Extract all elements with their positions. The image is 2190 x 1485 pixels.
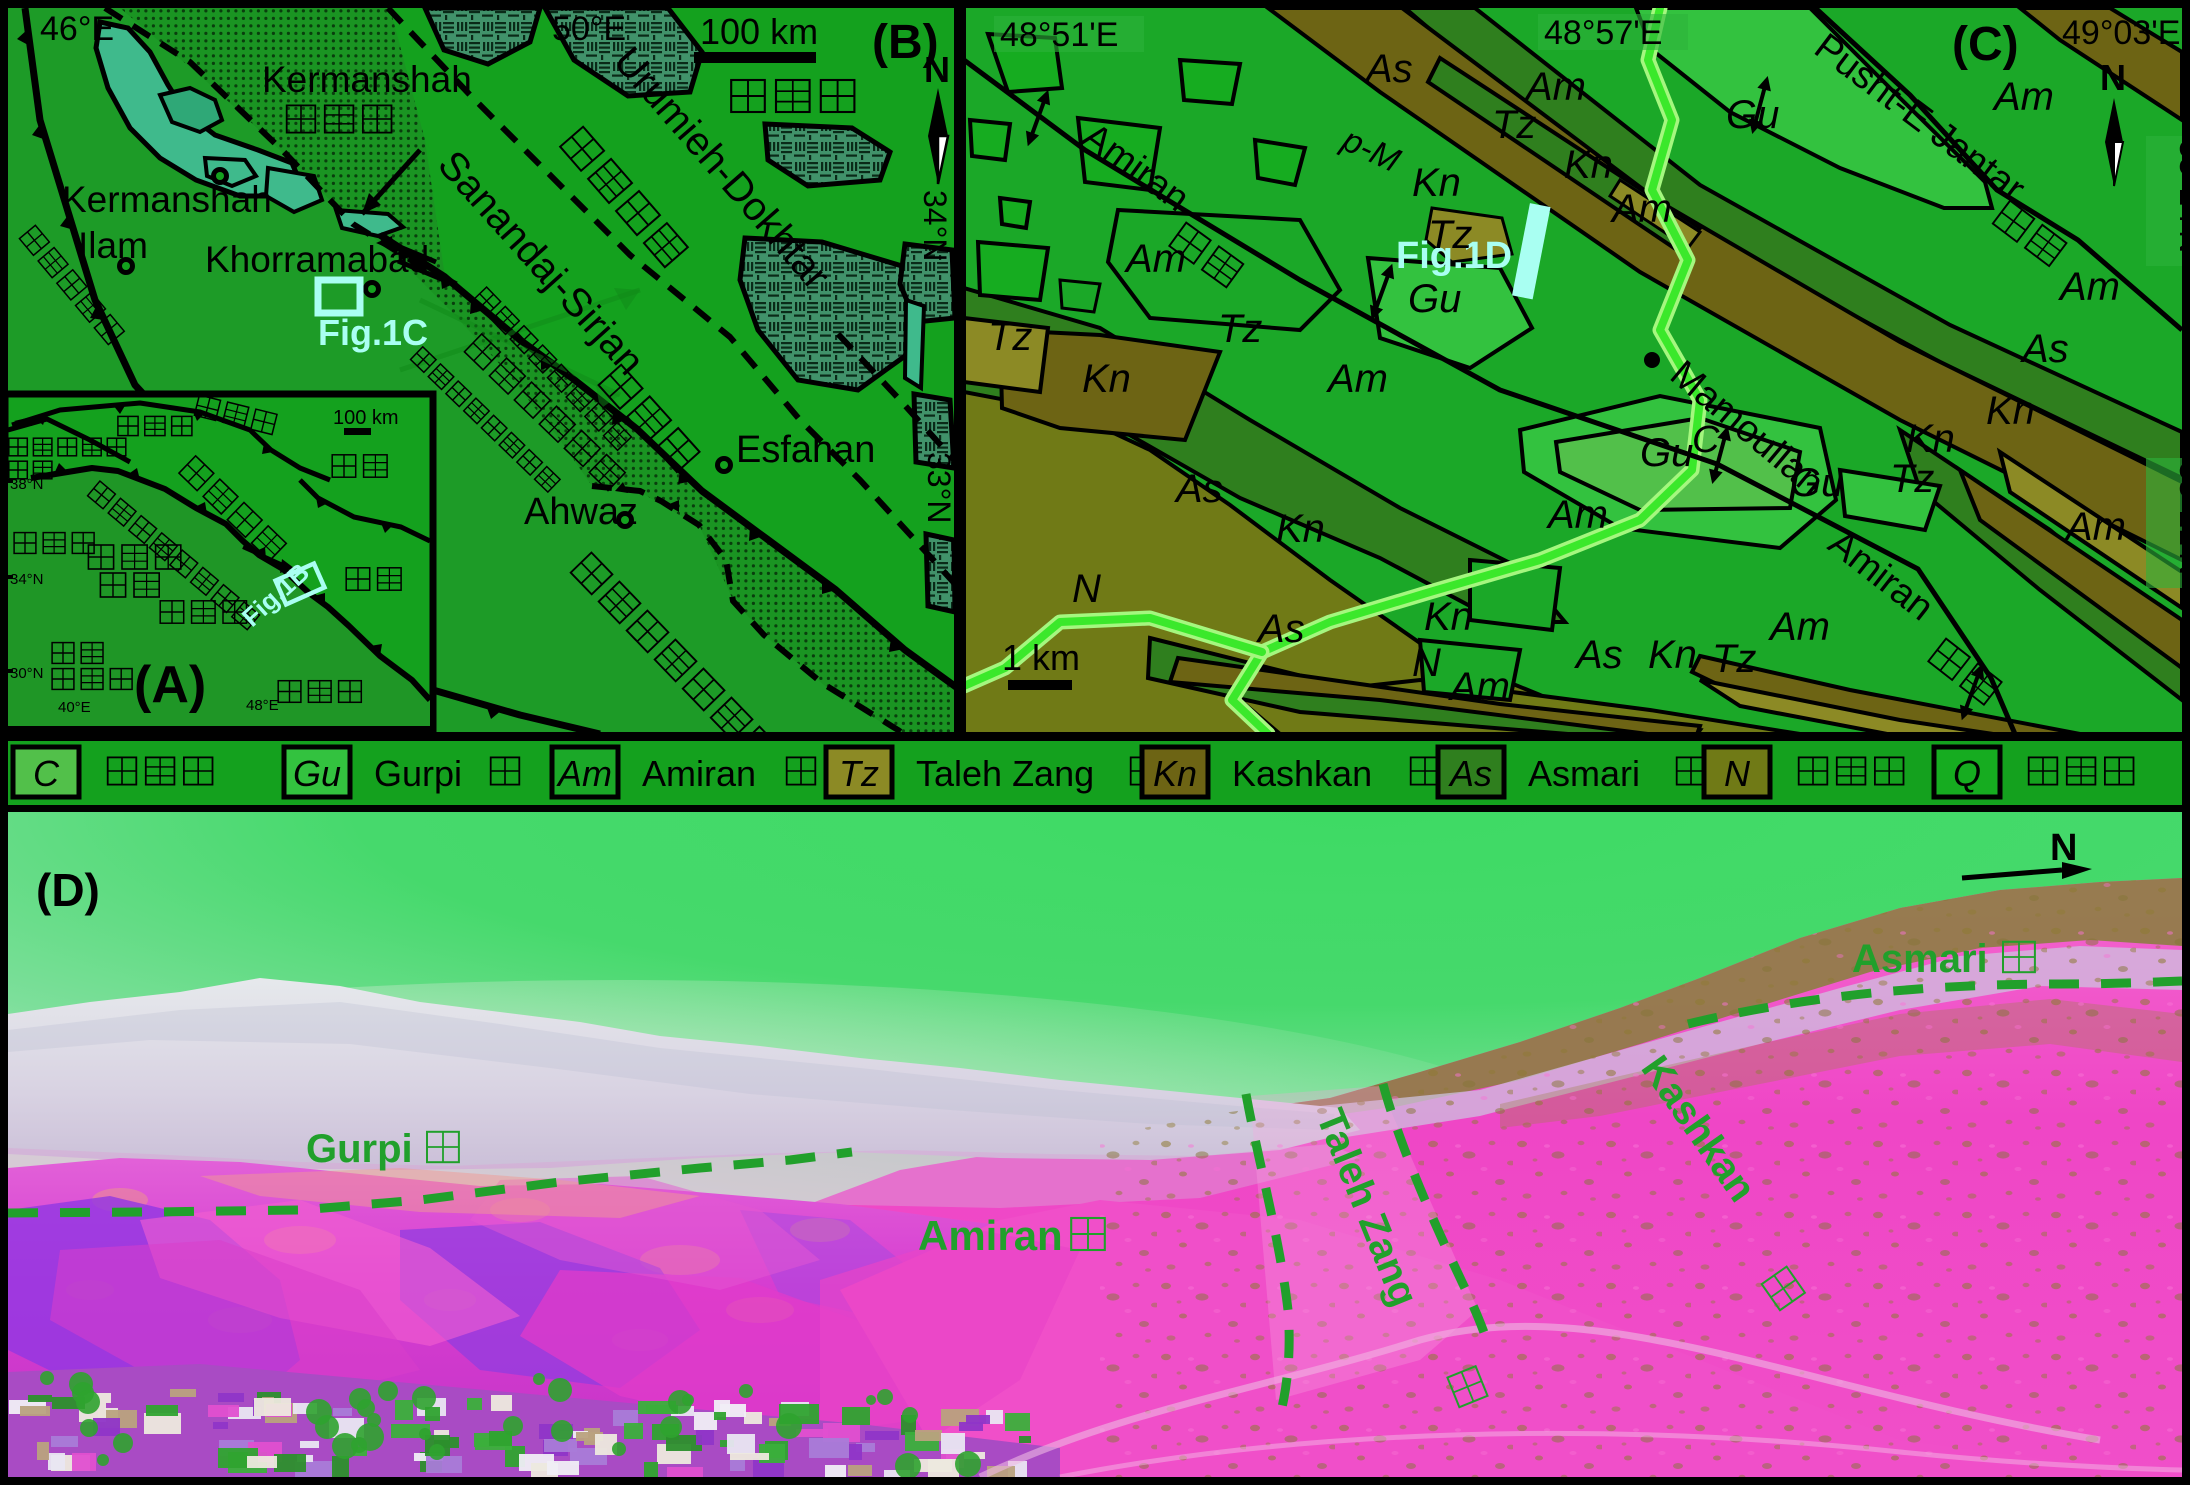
svg-text:49°03'E: 49°03'E (2062, 14, 2180, 52)
svg-text:Tz: Tz (1890, 457, 1934, 501)
svg-text:100 km: 100 km (700, 11, 818, 52)
svg-text:40°E: 40°E (58, 699, 91, 716)
svg-text:Am: Am (556, 753, 612, 794)
svg-text:48°57'E: 48°57'E (1544, 14, 1662, 52)
svg-text:N: N (924, 49, 950, 90)
svg-text:As: As (1256, 607, 1305, 651)
svg-text:As: As (1574, 633, 1623, 677)
svg-text:(C): (C) (1952, 18, 2019, 71)
svg-text:Ilam: Ilam (78, 225, 148, 266)
svg-text:46°E: 46°E (40, 10, 114, 48)
svg-text:Tz: Tz (1492, 103, 1536, 147)
svg-text:34°N: 34°N (10, 571, 44, 588)
svg-text:Tz: Tz (1712, 637, 1756, 681)
svg-text:Kn: Kn (1564, 143, 1613, 187)
svg-text:Am: Am (1992, 75, 2054, 119)
svg-text:Kn: Kn (1153, 753, 1197, 794)
svg-text:Kn: Kn (1648, 633, 1697, 677)
svg-text:Tz: Tz (1428, 213, 1472, 257)
svg-text:Taleh Zang: Taleh Zang (916, 753, 1094, 794)
svg-text:Am: Am (1610, 187, 1672, 231)
svg-text:As: As (1174, 467, 1223, 511)
svg-text:(D): (D) (36, 864, 100, 916)
svg-text:Gu: Gu (1726, 93, 1779, 137)
svg-text:Am: Am (2064, 505, 2126, 549)
svg-text:Tz: Tz (1218, 307, 1262, 351)
svg-text:Gurpi: Gurpi (306, 1127, 413, 1171)
svg-text:As: As (1364, 47, 1413, 91)
svg-text:N: N (1072, 567, 1101, 611)
svg-text:100 km: 100 km (333, 407, 399, 429)
svg-text:Gu: Gu (1640, 431, 1693, 475)
svg-text:Esfahan: Esfahan (736, 429, 875, 471)
svg-text:Kermanshah: Kermanshah (62, 179, 272, 220)
svg-text:C: C (33, 753, 60, 794)
svg-text:Amiran: Amiran (918, 1212, 1063, 1259)
svg-text:Am: Am (1124, 237, 1186, 281)
svg-text:Tz: Tz (839, 753, 879, 794)
svg-text:Kn: Kn (1906, 417, 1955, 461)
svg-text:Asmari: Asmari (1528, 753, 1640, 794)
svg-text:Gurpi: Gurpi (374, 753, 462, 794)
svg-text:Kashkan: Kashkan (1232, 753, 1372, 794)
svg-text:34°N: 34°N (917, 190, 953, 262)
svg-text:N: N (1412, 641, 1441, 685)
svg-text:Kn: Kn (1082, 357, 1131, 401)
svg-text:Gu: Gu (1408, 277, 1461, 321)
svg-text:Kn: Kn (1412, 161, 1461, 205)
svg-text:Fig.1C: Fig.1C (318, 312, 428, 353)
svg-text:Kn: Kn (1424, 595, 1473, 639)
svg-text:Asmari: Asmari (1852, 937, 1988, 981)
svg-text:As: As (2020, 327, 2069, 371)
svg-text:Kn: Kn (1986, 389, 2035, 433)
svg-text:30°N: 30°N (10, 665, 44, 682)
svg-text:Am: Am (1448, 665, 1510, 709)
svg-text:48°51'E: 48°51'E (1000, 16, 1118, 54)
svg-text:Am: Am (1326, 357, 1388, 401)
svg-text:Q: Q (1953, 753, 1981, 794)
svg-text:Kermanshah: Kermanshah (262, 59, 472, 100)
svg-text:N: N (1724, 753, 1751, 794)
svg-text:38°N: 38°N (10, 476, 44, 493)
svg-text:Gu: Gu (293, 753, 341, 794)
svg-text:As: As (1448, 753, 1492, 794)
svg-text:Kn: Kn (1276, 507, 1325, 551)
svg-text:Am: Am (1546, 493, 1608, 537)
svg-text:N: N (2100, 57, 2126, 98)
svg-text:Am: Am (2058, 265, 2120, 309)
svg-text:Am: Am (1768, 605, 1830, 649)
svg-text:33°N: 33°N (921, 452, 957, 524)
svg-text:1 km: 1 km (1002, 637, 1080, 678)
svg-text:N: N (2050, 827, 2077, 869)
svg-text:Tz: Tz (988, 315, 1032, 359)
svg-text:(A): (A) (134, 656, 206, 714)
svg-text:50°E: 50°E (552, 10, 626, 48)
svg-text:Amiran: Amiran (642, 753, 756, 794)
svg-text:Khorramabad: Khorramabad (205, 239, 429, 280)
svg-text:48°E: 48°E (246, 697, 279, 714)
